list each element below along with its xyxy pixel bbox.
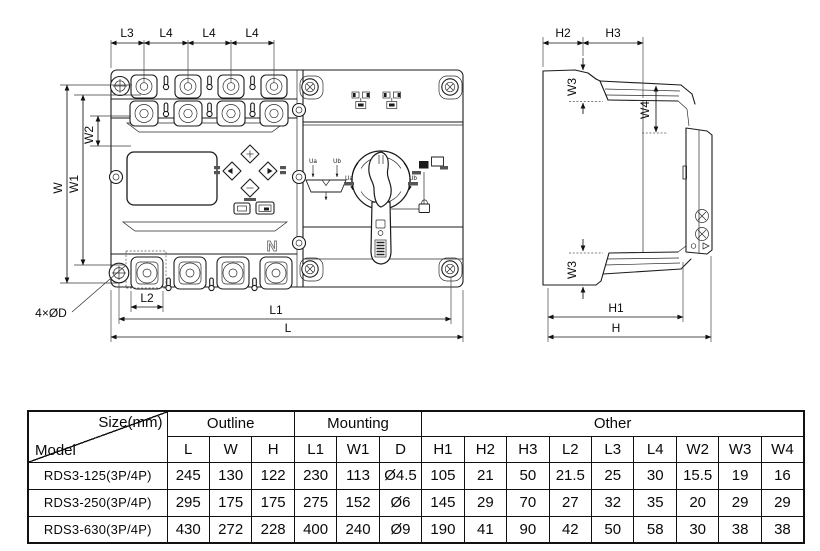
col-header-W: W <box>209 436 251 462</box>
col-header-W3: W3 <box>719 436 761 462</box>
value-cell: 21 <box>464 462 506 489</box>
col-header-D: D <box>379 436 421 462</box>
value-cell: 50 <box>507 462 549 489</box>
dim-label-l1: L1 <box>269 303 283 317</box>
value-cell: 19 <box>719 462 761 489</box>
dim-label-w1: W1 <box>67 175 81 193</box>
value-cell: 21.5 <box>549 462 591 489</box>
value-cell: Ø6 <box>379 489 421 516</box>
dim-label-h1: H1 <box>608 301 624 315</box>
neutral-pole-label: N <box>267 238 278 255</box>
model-cell: RDS3-250(3P/4P) <box>28 489 167 516</box>
value-cell: 15.5 <box>676 462 718 489</box>
value-cell: 175 <box>209 489 251 516</box>
dim-label-l4: L4 <box>202 26 216 40</box>
col-header-H3: H3 <box>507 436 549 462</box>
model-label: Model <box>35 442 76 459</box>
value-cell: 42 <box>549 516 591 543</box>
value-cell: 38 <box>761 516 804 543</box>
value-cell: 230 <box>294 462 336 489</box>
model-cell: RDS3-125(3P/4P) <box>28 462 167 489</box>
side-view: H2 H3 W3 W4 W3 H1 H <box>543 26 712 342</box>
source-b-label: Ub <box>333 159 341 165</box>
source-a-label: Ua <box>309 159 317 165</box>
col-header-W1: W1 <box>337 436 379 462</box>
technical-drawing: N Ua Ub <box>0 0 820 408</box>
value-cell: 29 <box>719 489 761 516</box>
dim-label-h2: H2 <box>555 26 571 40</box>
col-header-H1: H1 <box>422 436 464 462</box>
model-cell: RDS3-630(3P/4P) <box>28 516 167 543</box>
size-label: Size(mm) <box>98 414 162 431</box>
dim-label-l2: L2 <box>140 291 154 305</box>
value-cell: 295 <box>167 489 209 516</box>
value-cell: 190 <box>422 516 464 543</box>
value-cell: 90 <box>507 516 549 543</box>
dim-label-l4: L4 <box>159 26 173 40</box>
col-header-L2: L2 <box>549 436 591 462</box>
value-cell: 272 <box>209 516 251 543</box>
dim-label-l3: L3 <box>120 26 134 40</box>
col-header-H: H <box>252 436 294 462</box>
group-header-outline: Outline <box>167 411 294 436</box>
value-cell: 400 <box>294 516 336 543</box>
value-cell: 58 <box>634 516 676 543</box>
value-cell: 25 <box>592 462 634 489</box>
col-header-L: L <box>167 436 209 462</box>
value-cell: 38 <box>719 516 761 543</box>
dim-label-l: L <box>285 321 292 335</box>
value-cell: 130 <box>209 462 251 489</box>
value-cell: 145 <box>422 489 464 516</box>
dimension-table-container: Size(mm) Model Outline Mounting Other L … <box>27 410 805 544</box>
col-header-L4: L4 <box>634 436 676 462</box>
din-rail-block <box>683 128 712 254</box>
dim-label-w2: W2 <box>82 126 96 144</box>
value-cell: 105 <box>422 462 464 489</box>
value-cell: 30 <box>676 516 718 543</box>
value-cell: 152 <box>337 489 379 516</box>
value-cell: 175 <box>252 489 294 516</box>
group-header-other: Other <box>422 411 804 436</box>
value-cell: Ø4.5 <box>379 462 421 489</box>
mounting-holes-callout: 4×ØD <box>35 306 67 320</box>
dim-label-h3: H3 <box>605 26 621 40</box>
table-row: RDS3-125(3P/4P) 245 130 122 230 113 Ø4.5… <box>28 462 804 489</box>
col-header-L3: L3 <box>592 436 634 462</box>
dim-label-w3: W3 <box>565 78 579 96</box>
table-row: RDS3-630(3P/4P) 430 272 228 400 240 Ø9 1… <box>28 516 804 543</box>
value-cell: 27 <box>549 489 591 516</box>
dim-label-w3: W3 <box>565 261 579 279</box>
value-cell: 41 <box>464 516 506 543</box>
dim-label-l4: L4 <box>245 26 259 40</box>
value-cell: 275 <box>294 489 336 516</box>
size-model-header-cell: Size(mm) Model <box>28 411 167 462</box>
value-cell: 70 <box>507 489 549 516</box>
value-cell: 29 <box>761 489 804 516</box>
dial-left-label: Ua <box>345 176 353 182</box>
group-header-mounting: Mounting <box>294 411 421 436</box>
front-view: N Ua Ub <box>35 26 463 342</box>
value-cell: 50 <box>592 516 634 543</box>
value-cell: Ø9 <box>379 516 421 543</box>
value-cell: 20 <box>676 489 718 516</box>
value-cell: 30 <box>634 462 676 489</box>
value-cell: 122 <box>252 462 294 489</box>
col-header-H2: H2 <box>464 436 506 462</box>
col-header-W4: W4 <box>761 436 804 462</box>
dimension-table: Size(mm) Model Outline Mounting Other L … <box>27 410 805 544</box>
value-cell: 29 <box>464 489 506 516</box>
value-cell: 245 <box>167 462 209 489</box>
value-cell: 430 <box>167 516 209 543</box>
side-profile <box>543 70 695 285</box>
value-cell: 16 <box>761 462 804 489</box>
table-row: RDS3-250(3P/4P) 295 175 175 275 152 Ø6 1… <box>28 489 804 516</box>
col-header-L1: L1 <box>294 436 336 462</box>
page: N Ua Ub <box>0 0 820 551</box>
dim-label-h: H <box>612 321 621 335</box>
table-group-header-row: Size(mm) Model Outline Mounting Other <box>28 411 804 436</box>
value-cell: 113 <box>337 462 379 489</box>
value-cell: 240 <box>337 516 379 543</box>
dim-label-w4: W4 <box>638 101 652 119</box>
dim-label-w: W <box>51 182 65 194</box>
col-header-W2: W2 <box>676 436 718 462</box>
value-cell: 32 <box>592 489 634 516</box>
value-cell: 228 <box>252 516 294 543</box>
value-cell: 35 <box>634 489 676 516</box>
dial-right-label: Ub <box>409 176 417 182</box>
